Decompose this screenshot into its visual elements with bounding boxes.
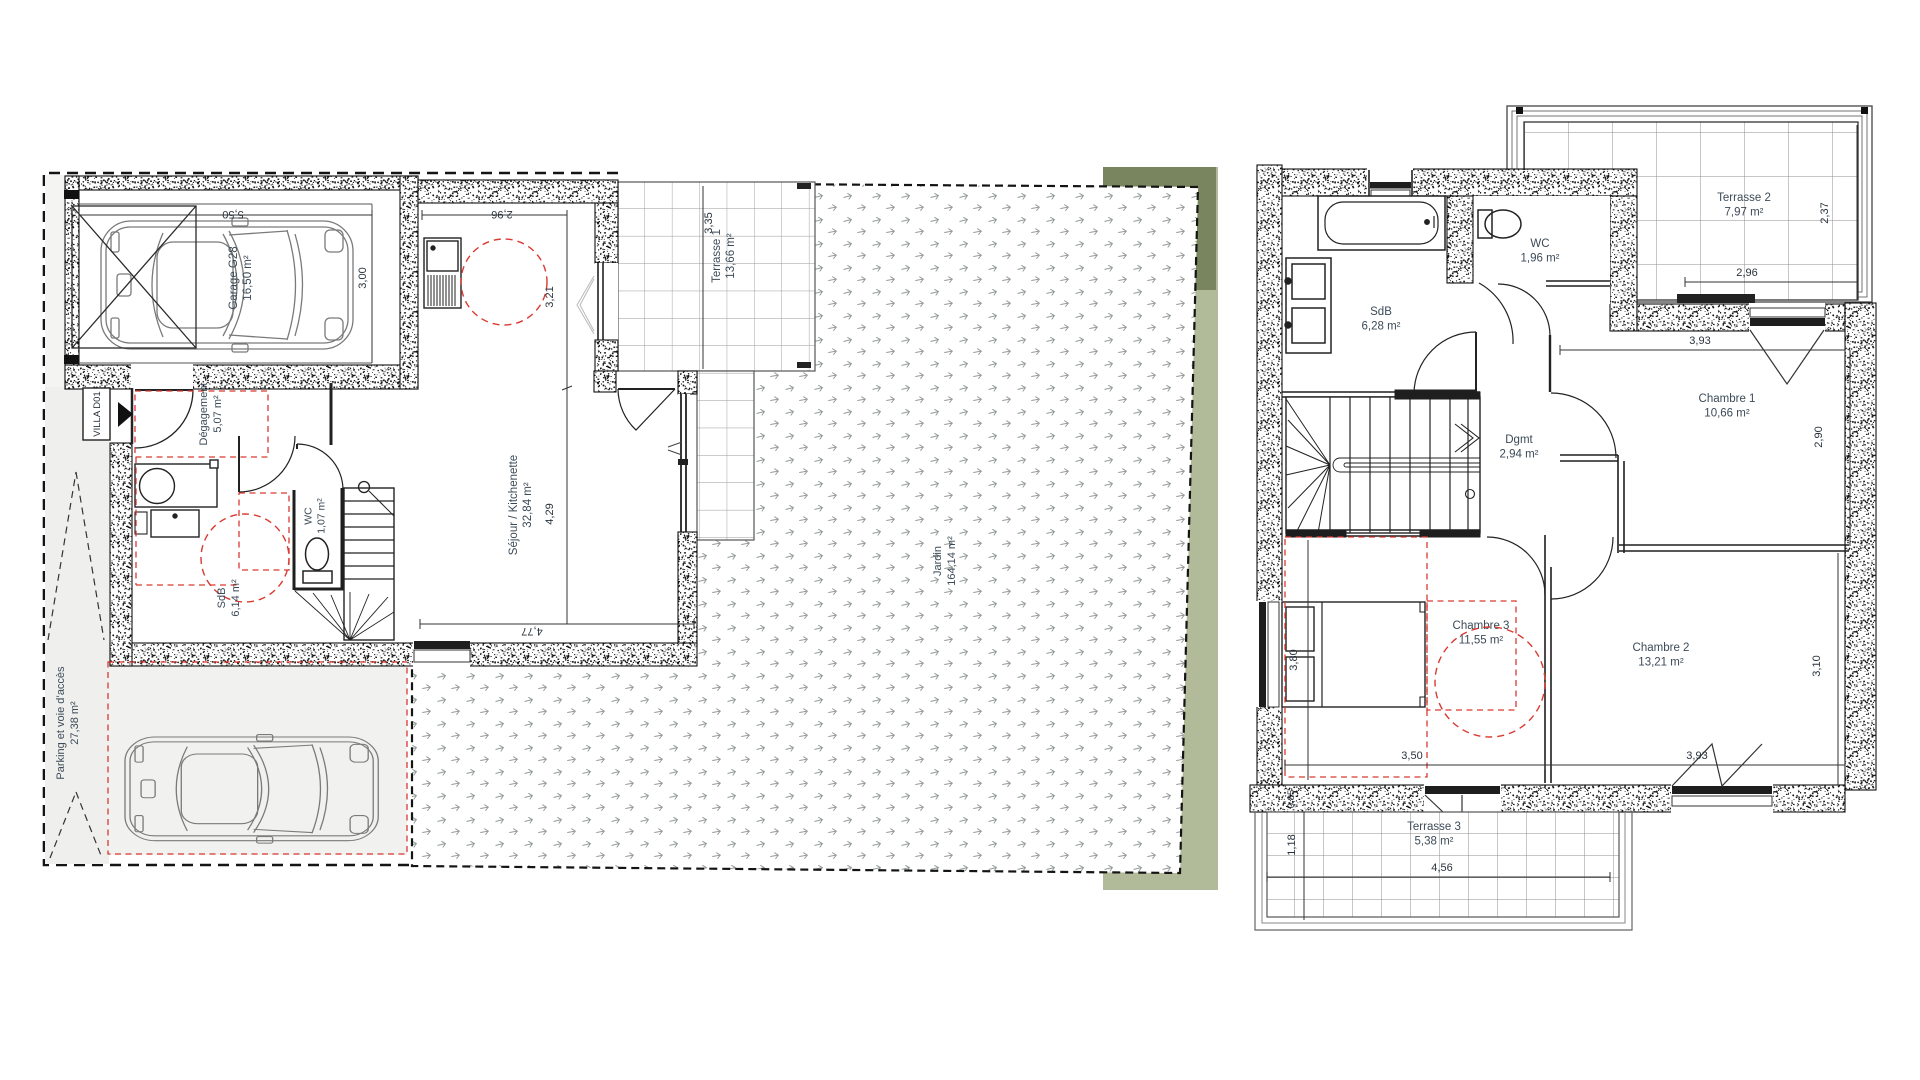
- svg-text:32,84 m²: 32,84 m²: [522, 482, 534, 528]
- svg-text:16,50 m²: 16,50 m²: [242, 255, 254, 301]
- svg-text:SdB: SdB: [216, 588, 228, 609]
- svg-text:3,35: 3,35: [703, 212, 715, 233]
- svg-text:164,14 m²: 164,14 m²: [946, 536, 958, 586]
- svg-text:Garage G28: Garage G28: [228, 246, 240, 309]
- svg-text:VILLA D01: VILLA D01: [92, 391, 103, 436]
- svg-text:3,80: 3,80: [1288, 649, 1300, 670]
- svg-text:Séjour / Kitchenette: Séjour / Kitchenette: [508, 455, 520, 555]
- svg-text:4,77: 4,77: [521, 625, 542, 637]
- svg-text:Parking et voie d’accès: Parking et voie d’accès: [55, 666, 67, 780]
- svg-text:Jardin: Jardin: [932, 546, 944, 576]
- svg-text:3,93: 3,93: [1686, 750, 1707, 762]
- svg-text:2,90: 2,90: [1813, 426, 1825, 447]
- svg-text:2,94 m²: 2,94 m²: [1500, 448, 1539, 460]
- svg-text:27,38 m²: 27,38 m²: [69, 701, 81, 745]
- svg-text:3,50: 3,50: [1401, 750, 1422, 762]
- svg-text:11,55 m²: 11,55 m²: [1459, 634, 1504, 646]
- svg-text:3,00: 3,00: [357, 267, 369, 288]
- svg-text:5,50: 5,50: [222, 208, 243, 220]
- svg-text:4,56: 4,56: [1431, 862, 1452, 874]
- svg-text:7,97 m²: 7,97 m²: [1725, 206, 1764, 218]
- svg-text:WC: WC: [1530, 238, 1549, 250]
- svg-text:4,29: 4,29: [544, 503, 556, 524]
- svg-text:3,21: 3,21: [544, 286, 556, 307]
- svg-text:2,96: 2,96: [1736, 267, 1757, 279]
- svg-text:1,18: 1,18: [1286, 834, 1298, 855]
- svg-text:0,85: 0,85: [1286, 790, 1297, 809]
- svg-text:2,96: 2,96: [491, 208, 512, 220]
- svg-text:3,10: 3,10: [1811, 655, 1823, 676]
- svg-text:Chambre 3: Chambre 3: [1453, 620, 1510, 632]
- svg-text:13,21 m²: 13,21 m²: [1638, 656, 1684, 668]
- svg-text:5,38 m²: 5,38 m²: [1415, 835, 1454, 847]
- svg-text:Chambre 2: Chambre 2: [1633, 642, 1690, 654]
- svg-text:Terrasse 2: Terrasse 2: [1717, 192, 1771, 204]
- svg-text:Dégagement: Dégagement: [198, 383, 210, 446]
- svg-text:3,93: 3,93: [1689, 335, 1710, 347]
- svg-text:6,14 m²: 6,14 m²: [230, 579, 242, 617]
- svg-text:5,07 m²: 5,07 m²: [212, 395, 224, 433]
- svg-text:1,96 m²: 1,96 m²: [1521, 252, 1560, 264]
- svg-text:Chambre 1: Chambre 1: [1699, 393, 1756, 405]
- svg-text:Dgmt: Dgmt: [1505, 434, 1533, 446]
- svg-text:2,37: 2,37: [1819, 202, 1831, 223]
- svg-text:1,07 m²: 1,07 m²: [316, 498, 328, 534]
- svg-text:Terrasse 1: Terrasse 1: [711, 229, 723, 283]
- svg-text:SdB: SdB: [1370, 306, 1392, 318]
- svg-text:10,66 m²: 10,66 m²: [1704, 407, 1750, 419]
- svg-text:WC: WC: [303, 507, 315, 525]
- svg-text:Terrasse 3: Terrasse 3: [1407, 821, 1461, 833]
- svg-text:13,66 m²: 13,66 m²: [725, 233, 737, 279]
- svg-text:6,28 m²: 6,28 m²: [1362, 320, 1401, 332]
